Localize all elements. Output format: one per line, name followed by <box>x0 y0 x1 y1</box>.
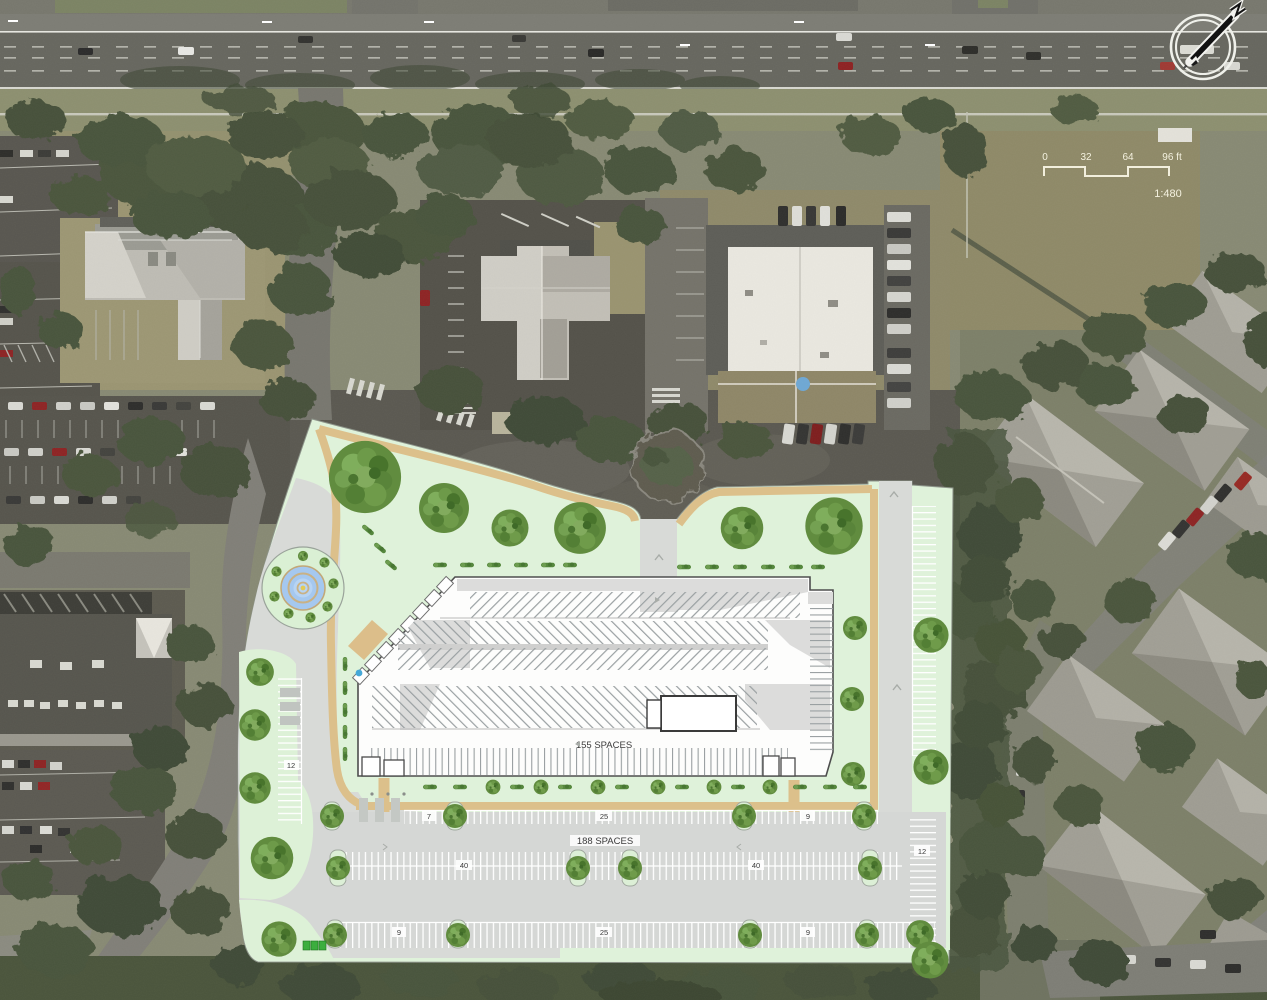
svg-text:1:480: 1:480 <box>1154 188 1182 200</box>
svg-text:64: 64 <box>1122 152 1134 163</box>
svg-text:40: 40 <box>460 861 468 870</box>
svg-text:12: 12 <box>918 847 926 856</box>
svg-text:9: 9 <box>397 928 401 937</box>
svg-text:40: 40 <box>752 861 760 870</box>
svg-text:7: 7 <box>427 812 431 821</box>
svg-text:9: 9 <box>806 928 810 937</box>
svg-text:32: 32 <box>1080 152 1092 163</box>
svg-text:155 SPACES: 155 SPACES <box>576 740 632 751</box>
svg-text:12: 12 <box>287 761 295 770</box>
svg-text:9: 9 <box>806 812 810 821</box>
svg-text:96 ft: 96 ft <box>1162 152 1182 163</box>
svg-text:0: 0 <box>1042 152 1048 163</box>
svg-text:25: 25 <box>600 812 608 821</box>
svg-text:25: 25 <box>600 928 608 937</box>
svg-text:188 SPACES: 188 SPACES <box>577 836 633 847</box>
